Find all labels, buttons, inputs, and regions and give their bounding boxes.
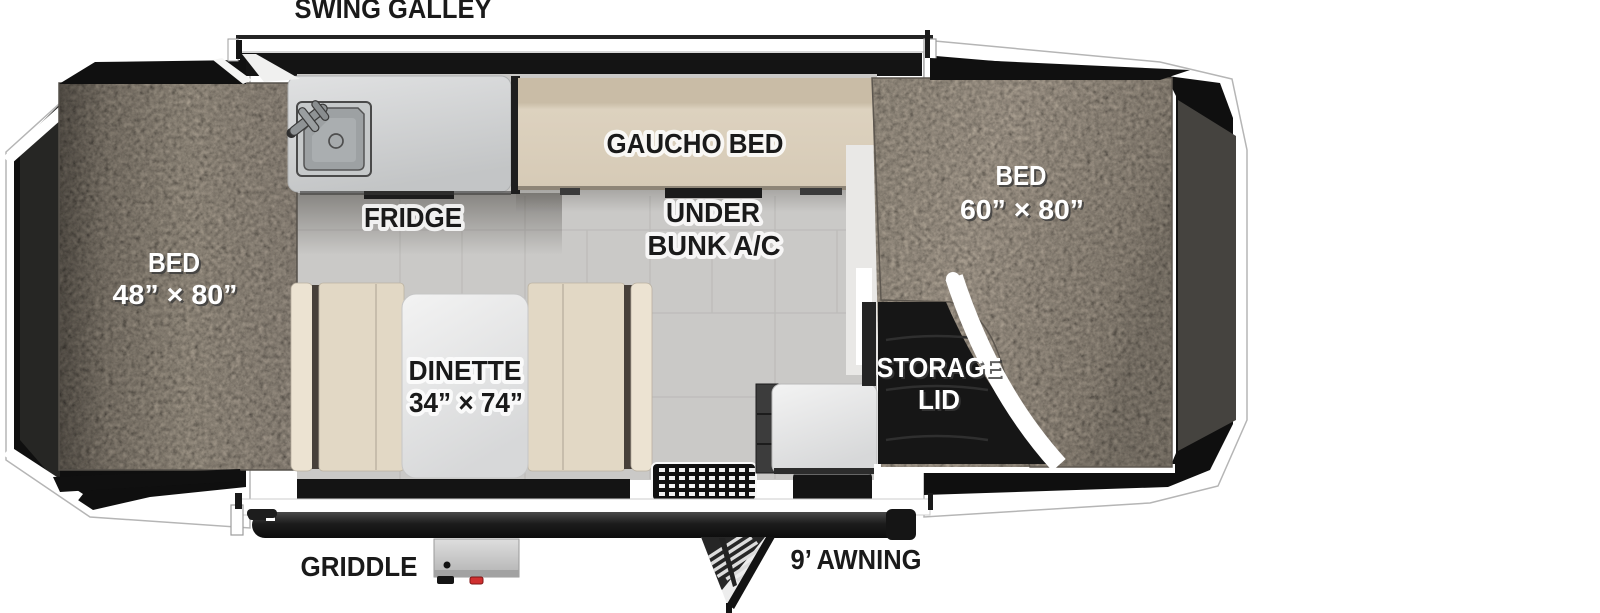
svg-text:LID: LID (918, 384, 960, 415)
svg-text:GRIDDLE: GRIDDLE (301, 551, 418, 582)
svg-text:BUNK A/C: BUNK A/C (648, 230, 781, 261)
svg-text:UNDER: UNDER (666, 197, 760, 228)
svg-text:DINETTE: DINETTE (409, 355, 522, 386)
svg-text:34” × 74”: 34” × 74” (409, 387, 523, 418)
svg-text:48” × 80”: 48” × 80” (113, 279, 238, 310)
svg-text:SWING GALLEY: SWING GALLEY (295, 0, 492, 24)
svg-text:BED: BED (148, 247, 200, 278)
svg-text:9’ AWNING: 9’ AWNING (791, 544, 922, 575)
svg-text:60” × 80”: 60” × 80” (960, 194, 1084, 225)
svg-text:FRIDGE: FRIDGE (364, 202, 462, 233)
svg-text:GAUCHO BED: GAUCHO BED (607, 128, 784, 159)
svg-text:BED: BED (996, 160, 1047, 191)
svg-text:STORAGE: STORAGE (877, 352, 1002, 383)
